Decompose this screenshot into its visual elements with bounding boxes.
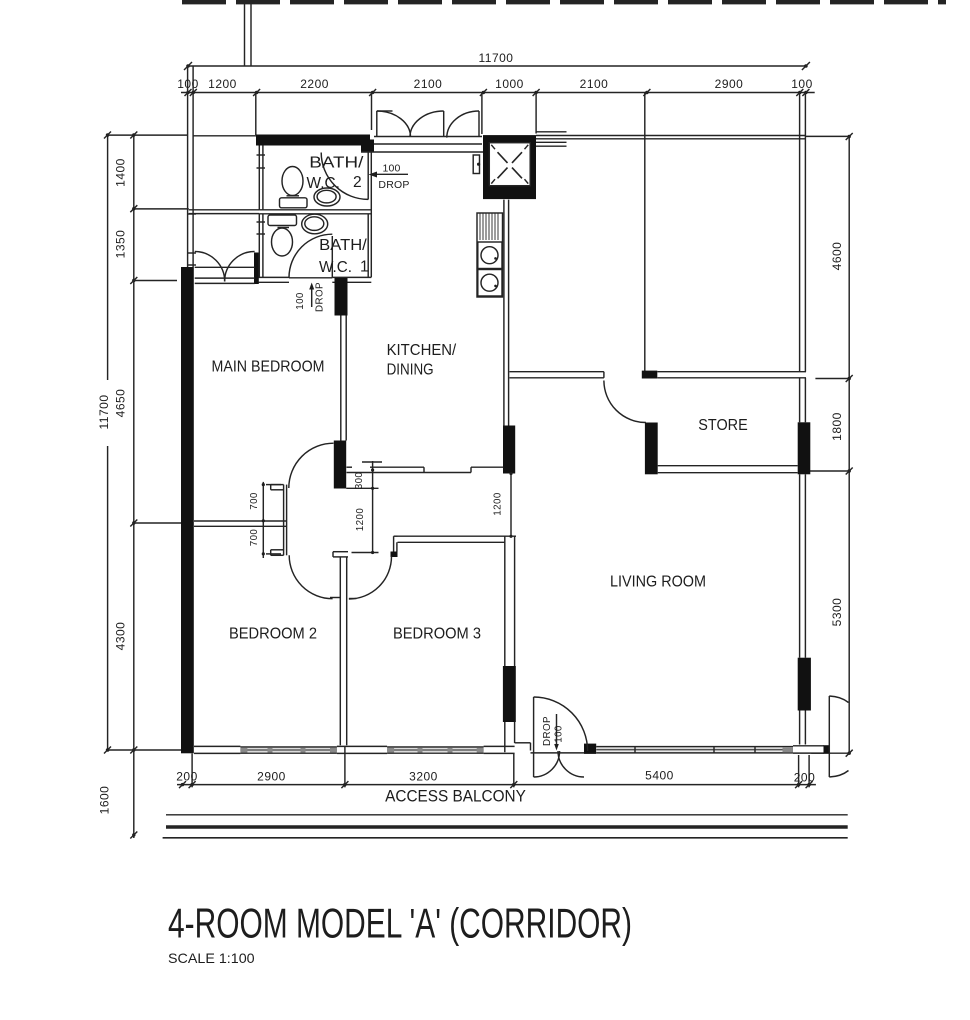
svg-text:2900: 2900 bbox=[715, 77, 744, 91]
svg-text:ACCESS BALCONY: ACCESS BALCONY bbox=[385, 787, 526, 806]
svg-text:200: 200 bbox=[794, 770, 816, 784]
svg-text:5400: 5400 bbox=[645, 768, 674, 782]
svg-text:100: 100 bbox=[295, 292, 306, 310]
svg-text:STORE: STORE bbox=[698, 417, 747, 434]
svg-text:W.C.: W.C. bbox=[307, 175, 340, 192]
svg-text:1200: 1200 bbox=[355, 508, 366, 532]
svg-text:1400: 1400 bbox=[114, 158, 128, 187]
svg-text:1200: 1200 bbox=[208, 77, 237, 91]
svg-text:1000: 1000 bbox=[495, 77, 524, 91]
svg-text:100: 100 bbox=[791, 77, 813, 91]
svg-text:2100: 2100 bbox=[580, 77, 609, 91]
svg-text:200: 200 bbox=[176, 769, 198, 783]
svg-text:100: 100 bbox=[382, 163, 400, 175]
svg-text:LIVING ROOM: LIVING ROOM bbox=[610, 574, 706, 591]
svg-text:11700: 11700 bbox=[479, 51, 514, 65]
svg-text:2: 2 bbox=[353, 174, 362, 191]
svg-text:4300: 4300 bbox=[114, 622, 128, 651]
svg-text:100: 100 bbox=[554, 725, 565, 743]
svg-text:4650: 4650 bbox=[114, 389, 128, 418]
svg-text:SCALE 1:100: SCALE 1:100 bbox=[168, 950, 255, 966]
svg-text:BATH/: BATH/ bbox=[319, 237, 367, 254]
svg-text:300: 300 bbox=[354, 472, 365, 490]
svg-text:5300: 5300 bbox=[830, 598, 844, 627]
svg-text:DROP: DROP bbox=[542, 716, 553, 746]
svg-text:DROP: DROP bbox=[378, 179, 409, 191]
svg-text:4600: 4600 bbox=[830, 242, 844, 271]
svg-text:DINING: DINING bbox=[387, 361, 434, 378]
svg-text:11700: 11700 bbox=[97, 395, 111, 430]
svg-text:4-ROOM MODEL 'A' (CORRIDOR): 4-ROOM MODEL 'A' (CORRIDOR) bbox=[168, 900, 632, 947]
svg-text:1600: 1600 bbox=[98, 786, 112, 815]
svg-text:1800: 1800 bbox=[830, 412, 844, 441]
svg-text:KITCHEN/: KITCHEN/ bbox=[387, 342, 457, 359]
svg-text:700: 700 bbox=[249, 492, 260, 510]
svg-text:1350: 1350 bbox=[114, 230, 128, 259]
svg-text:3200: 3200 bbox=[409, 769, 438, 783]
svg-text:BEDROOM 2: BEDROOM 2 bbox=[229, 626, 317, 643]
svg-text:2200: 2200 bbox=[300, 77, 329, 91]
svg-text:W.C.: W.C. bbox=[319, 259, 352, 276]
svg-text:700: 700 bbox=[249, 529, 260, 547]
svg-text:MAIN BEDROOM: MAIN BEDROOM bbox=[212, 359, 325, 376]
svg-text:2900: 2900 bbox=[257, 769, 286, 783]
svg-text:DROP: DROP bbox=[315, 282, 326, 312]
svg-text:1: 1 bbox=[360, 259, 369, 276]
svg-text:BEDROOM 3: BEDROOM 3 bbox=[393, 626, 481, 643]
svg-text:2100: 2100 bbox=[414, 77, 443, 91]
svg-text:BATH/: BATH/ bbox=[309, 155, 364, 172]
svg-text:1200: 1200 bbox=[493, 492, 504, 516]
